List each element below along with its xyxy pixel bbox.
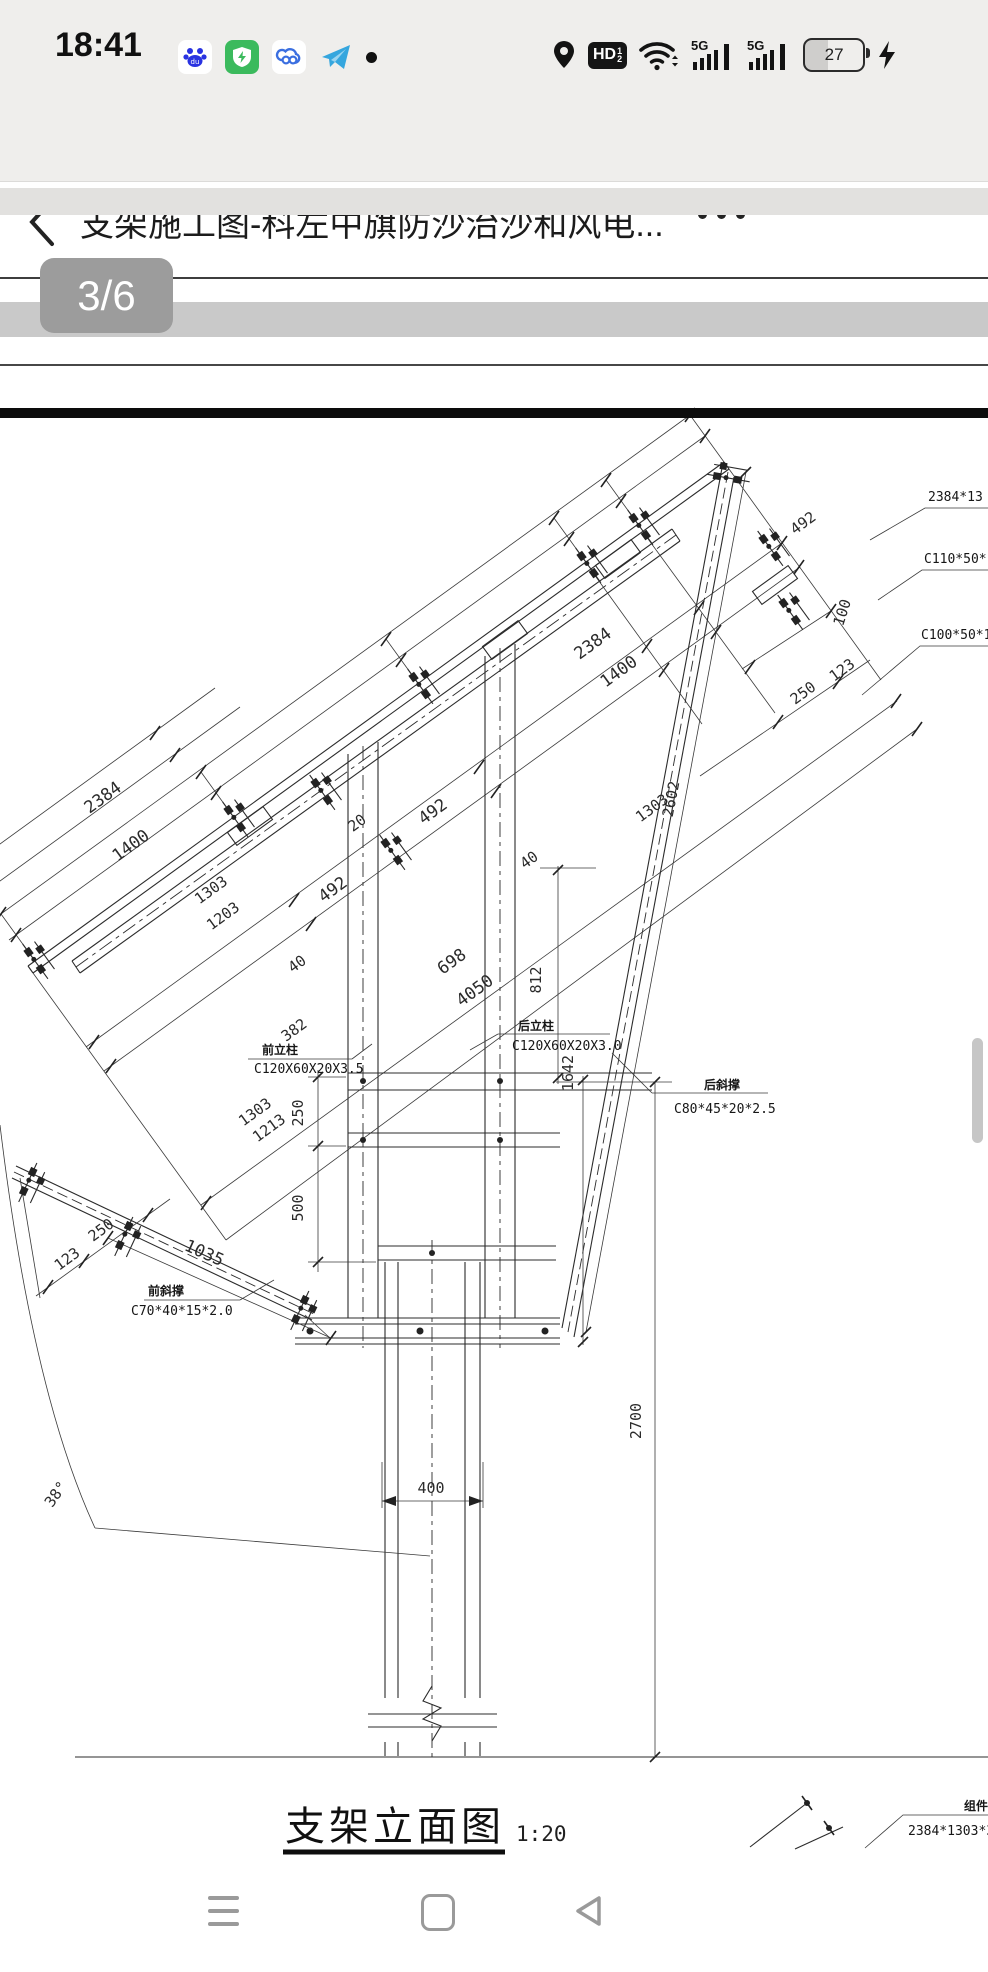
hd-voice-icon: HD 12 [588,42,627,69]
rear-brace-label: 后斜撑 [704,1077,740,1092]
component-spec: 2384*1303*35 [908,1824,988,1839]
rear-column-label: 后立柱 [518,1018,554,1033]
svg-text:5G: 5G [691,38,708,53]
dim-text: 1035 [181,1236,227,1271]
baidu-cloud-icon [272,40,306,74]
dim-text: 2384 [81,778,126,818]
dim-text: 400 [417,1479,444,1497]
dim-text: 123 [826,655,858,685]
callout-leaders [862,508,988,695]
signal-5g-icon: 5G [691,38,735,72]
security-shield-icon [225,40,259,74]
telegram-icon [319,40,353,74]
callout-c110-purlin: C110*50*15 [924,552,988,567]
phone-screen: 100 123 250 492 2384 1400 1303 2602 492 … [0,0,988,1972]
dim-text: 250 [289,1099,307,1126]
home-square-icon[interactable] [421,1894,455,1931]
angle-text: 38° [41,1478,71,1511]
front-brace-spec: C70*40*15*2.0 [131,1304,233,1319]
page-indicator-badge: 3/6 [40,258,173,333]
dim-text: 492 [787,508,819,538]
callout-module-size: 2384*13 [928,490,983,505]
baidu-app-icon: du [178,40,212,74]
drawing-caption: 支架立面图 1:20 [283,1804,567,1852]
dim-text: 100 [829,597,854,628]
dim-text: 4050 [453,971,498,1011]
dim-text: 1400 [109,826,154,866]
scrollbar-thumb[interactable] [972,1038,983,1143]
rear-column-spec: C120X60X20X3.0 [512,1039,622,1054]
purlin-sections [227,540,797,846]
dim-text: 40 [284,951,309,976]
notification-dot [366,52,377,63]
signal-5g-icon: 5G [747,38,791,72]
front-brace-label: 前斜撑 [148,1283,184,1298]
page-separator-line-2 [0,364,988,366]
android-navigation-bar [0,1878,988,1972]
dim-text: 492 [315,873,352,907]
dim-text: 698 [434,945,471,979]
dim-text: 40 [516,847,541,872]
toolbar-band [0,188,988,215]
front-column-spec: C120X60X20X3.5 [254,1062,364,1077]
dim-text: 123 [51,1244,83,1274]
location-icon [552,40,576,70]
svg-text:5G: 5G [747,38,764,53]
dim-text: 2384 [571,624,616,664]
front-column-label: 前立柱 [262,1042,298,1057]
status-bar: 18:41 du HD 12 [0,0,988,90]
caption-scale: 1:20 [516,1822,567,1846]
callout-texts: 2384*13 C110*50*15 C100*50*15 [921,490,988,643]
dim-text: 812 [527,966,545,993]
wifi-icon [639,39,679,71]
dim-text: 250 [787,678,819,708]
component-mini-sketch [750,1796,988,1849]
document-title-bar: 支架施工图-科左中旗防沙治沙和风电... [0,90,988,182]
back-triangle-icon[interactable] [572,1894,606,1928]
page-top-border [0,408,988,418]
dim-text: 1203 [203,898,243,934]
callout-c100-purlin: C100*50*15 [921,628,988,643]
clock-text: 18:41 [55,26,142,65]
battery-icon: 27 [803,38,865,72]
component-label: 组件 [964,1798,988,1813]
rear-brace-spec: C80*45*20*2.5 [674,1102,776,1117]
svg-text:du: du [191,58,200,66]
main-rail-beam [72,529,680,973]
dim-text: 1642 [559,1055,577,1091]
dimension-texts: 100 123 250 492 2384 1400 1303 2602 492 … [41,508,859,1511]
caption-title: 支架立面图 [285,1804,505,1850]
recents-menu-icon[interactable] [208,1896,239,1926]
dim-text: 382 [278,1015,310,1045]
dim-text: 500 [289,1194,307,1221]
charging-bolt-icon [877,40,897,70]
dim-text: 1400 [597,652,642,692]
dim-text: 492 [415,795,452,829]
dim-text: 2700 [627,1403,645,1439]
